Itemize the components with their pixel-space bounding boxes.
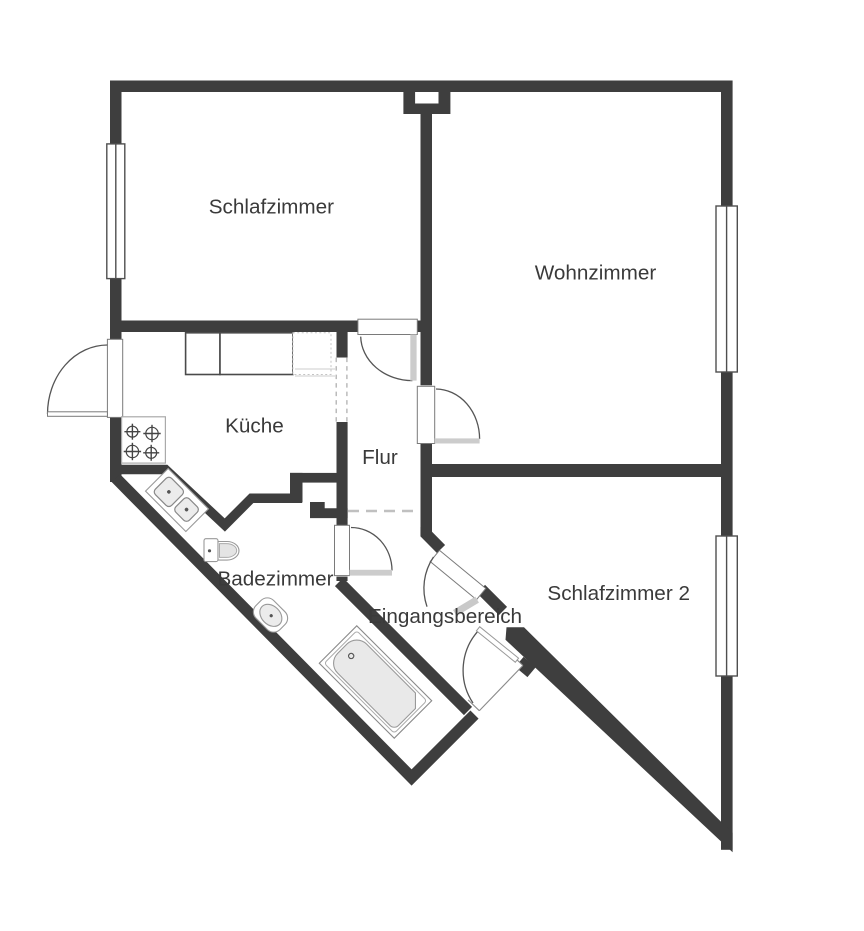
svg-text:Flur: Flur bbox=[362, 446, 398, 469]
svg-text:Eingangsbereich: Eingangsbereich bbox=[368, 605, 522, 628]
svg-text:Badezimmer: Badezimmer bbox=[217, 568, 333, 591]
svg-text:Schlafzimmer 2: Schlafzimmer 2 bbox=[547, 582, 690, 605]
svg-text:Schlafzimmer: Schlafzimmer bbox=[209, 196, 334, 219]
svg-text:Wohnzimmer: Wohnzimmer bbox=[535, 262, 657, 285]
svg-text:Küche: Küche bbox=[225, 415, 284, 438]
